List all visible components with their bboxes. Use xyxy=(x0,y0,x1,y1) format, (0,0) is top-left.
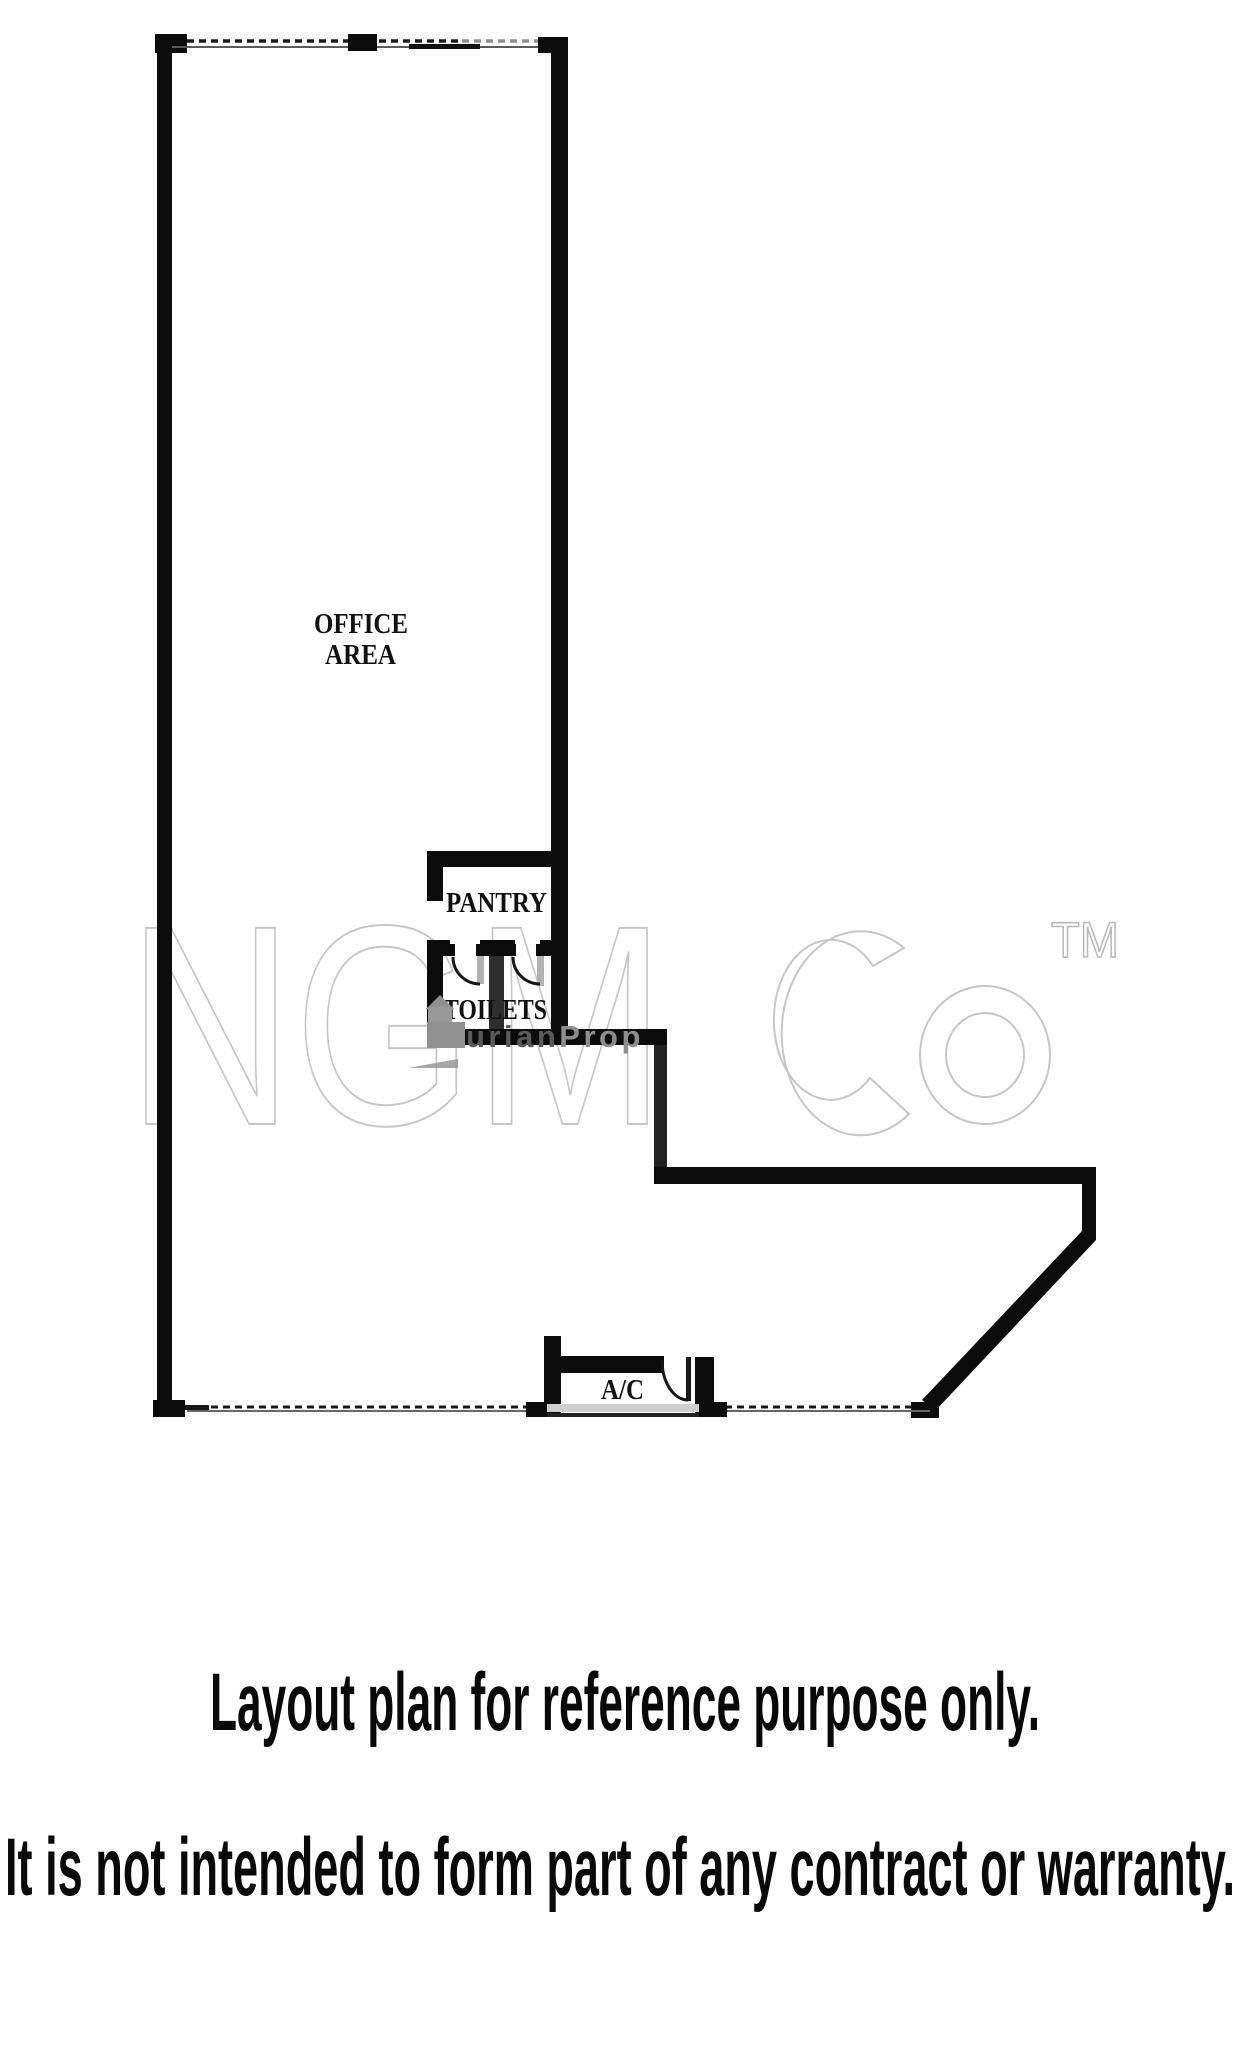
svg-text:AREA: AREA xyxy=(325,639,396,671)
svg-text:It is not intended to form par: It is not intended to form part of any c… xyxy=(5,1822,1235,1913)
svg-text:TM: TM xyxy=(1051,912,1119,968)
svg-text:Layout plan for reference purp: Layout plan for reference purpose only. xyxy=(210,1657,1040,1748)
svg-text:PANTRY: PANTRY xyxy=(446,887,547,919)
svg-text:OFFICE: OFFICE xyxy=(314,608,408,640)
svg-text:urianProp: urianProp xyxy=(466,1019,644,1054)
svg-text:A/C: A/C xyxy=(601,1375,644,1406)
